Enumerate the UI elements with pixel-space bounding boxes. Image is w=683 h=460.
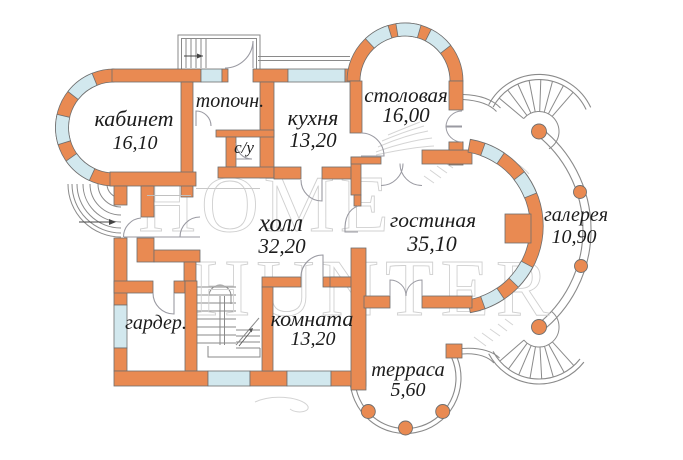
- svg-text:гостиная: гостиная: [390, 208, 476, 232]
- svg-text:кабинет: кабинет: [94, 106, 173, 131]
- svg-text:холл: холл: [258, 210, 303, 237]
- svg-text:32,20: 32,20: [257, 234, 306, 258]
- svg-text:16,10: 16,10: [113, 132, 158, 154]
- svg-text:топочн.: топочн.: [196, 90, 264, 112]
- svg-text:гардер.: гардер.: [125, 312, 187, 334]
- svg-text:терраса: терраса: [371, 359, 444, 381]
- svg-text:13,20: 13,20: [291, 328, 336, 350]
- svg-text:16,00: 16,00: [382, 103, 430, 127]
- svg-text:с/у: с/у: [234, 138, 254, 157]
- svg-text:35,10: 35,10: [406, 231, 457, 256]
- svg-text:13,20: 13,20: [289, 128, 337, 152]
- svg-text:кухня: кухня: [288, 105, 339, 130]
- svg-text:5,60: 5,60: [391, 379, 426, 401]
- svg-text:10,90: 10,90: [552, 226, 597, 248]
- svg-text:галерея: галерея: [544, 204, 608, 226]
